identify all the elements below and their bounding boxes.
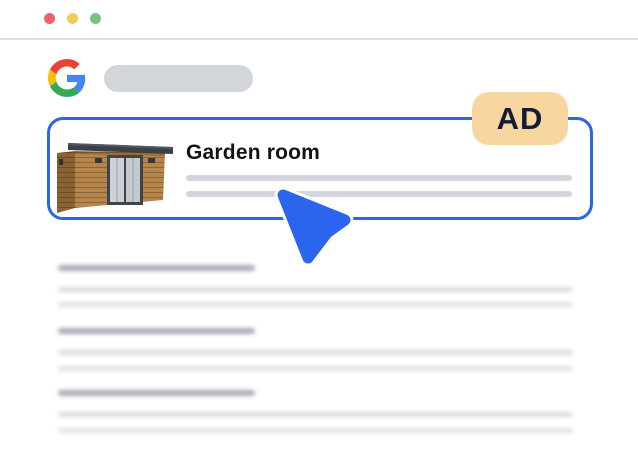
- result-title-skeleton: [58, 328, 255, 334]
- ad-title: Garden room: [186, 141, 320, 164]
- pointer-cursor-icon: [268, 182, 360, 274]
- result-line-skeleton: [58, 287, 573, 292]
- result-line-skeleton: [58, 428, 573, 433]
- result-line-skeleton: [58, 412, 573, 417]
- garden-room-image: [57, 133, 173, 213]
- ad-description-skeleton: [186, 191, 572, 197]
- result-line-skeleton: [58, 366, 573, 371]
- browser-mockup: Garden room AD: [0, 0, 638, 460]
- ad-badge: AD: [472, 92, 568, 145]
- result-line-skeleton: [58, 350, 573, 355]
- result-title-skeleton: [58, 265, 255, 271]
- result-line-skeleton: [58, 302, 573, 307]
- ad-description-skeleton: [186, 175, 572, 181]
- result-title-skeleton: [58, 390, 255, 396]
